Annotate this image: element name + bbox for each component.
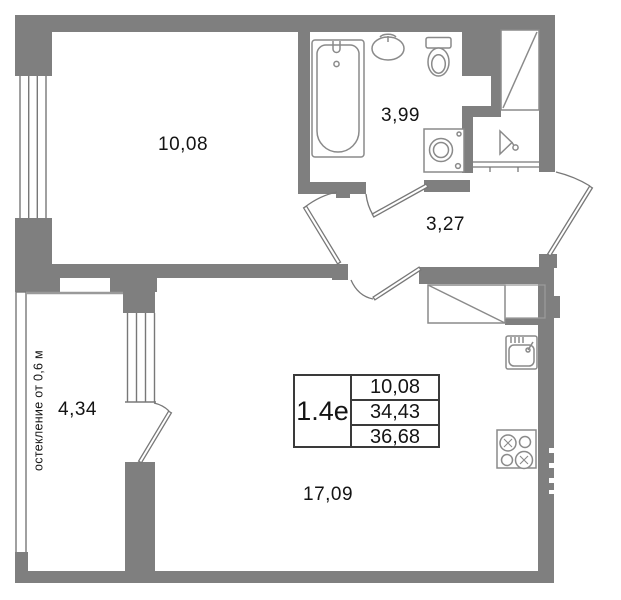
living-kitchen-area-label: 17,09 <box>303 484 353 506</box>
room-door <box>304 192 341 264</box>
floor-plan: 10,08 3,99 3,27 4,34 17,09 остекление от… <box>0 0 621 600</box>
ventilation-shaft <box>501 30 539 110</box>
water-valve <box>500 131 518 154</box>
balcony-door <box>139 403 172 463</box>
bathroom-sink <box>372 34 404 60</box>
balcony-glazing-note: остекление от 0,6 м <box>32 330 47 492</box>
balcony-window <box>125 313 156 402</box>
window-room-left <box>20 76 46 218</box>
bathroom-area-label: 3,99 <box>381 105 420 127</box>
kitchen-sink <box>506 336 537 369</box>
area-apartment-value: 34,43 <box>352 399 438 424</box>
living-room-door <box>351 267 421 300</box>
area-living-value: 10,08 <box>352 376 438 399</box>
hallway-area-label: 3,27 <box>426 214 465 236</box>
room-area-label: 10,08 <box>158 134 208 156</box>
entrance-door <box>548 172 593 256</box>
bathroom-door <box>366 184 428 217</box>
apartment-info-table: 1.4е 10,08 34,43 36,68 <box>293 374 440 448</box>
apartment-type-label: 1.4е <box>295 376 352 446</box>
washing-machine <box>424 129 464 172</box>
area-total-value: 36,68 <box>352 424 438 449</box>
apartment-areas: 10,08 34,43 36,68 <box>352 376 438 446</box>
bathtub <box>312 40 364 157</box>
stove <box>497 430 536 469</box>
wardrobe <box>428 285 505 323</box>
toilet <box>426 38 451 77</box>
plan-graphics <box>0 0 621 600</box>
meter-room-threshold <box>473 162 539 172</box>
balcony-area-label: 4,34 <box>58 399 97 421</box>
